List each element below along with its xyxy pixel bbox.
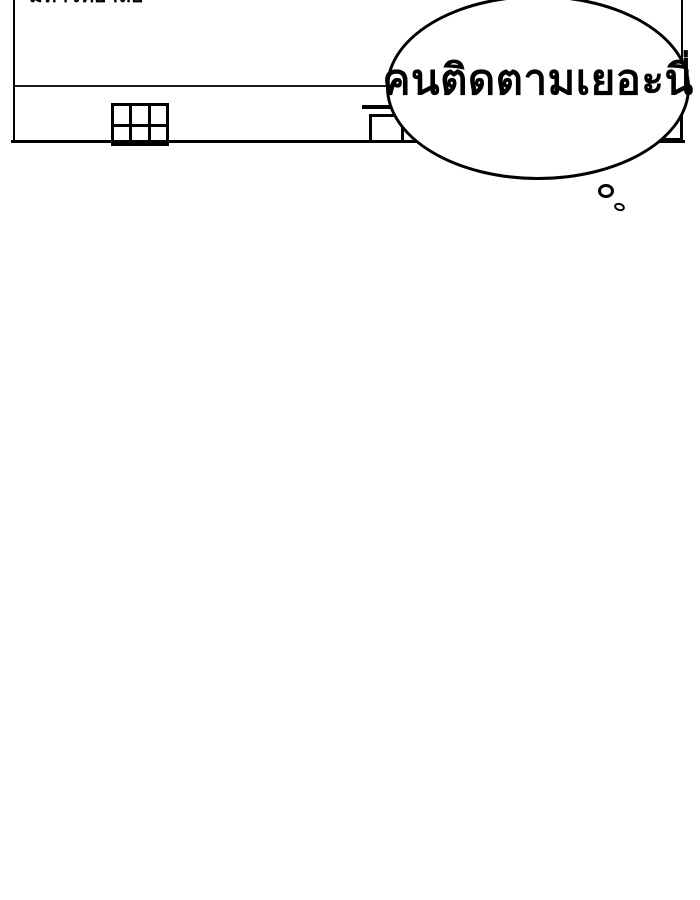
window-pane (114, 106, 129, 124)
thought-bubble-text: คนติดตามเยอะนี่ (398, 48, 678, 112)
window-pane (151, 106, 166, 124)
panel-caption-clipped: มหาวิทยาลัย (29, 0, 229, 8)
window-pane (132, 106, 147, 124)
panel-border-left (13, 0, 15, 143)
thought-trail-bubble-small (613, 201, 626, 212)
comic-page: มหาวิทยาลัย คนติดตามเยอะนี่ (0, 0, 700, 900)
thought-trail-bubble-large (598, 184, 614, 198)
